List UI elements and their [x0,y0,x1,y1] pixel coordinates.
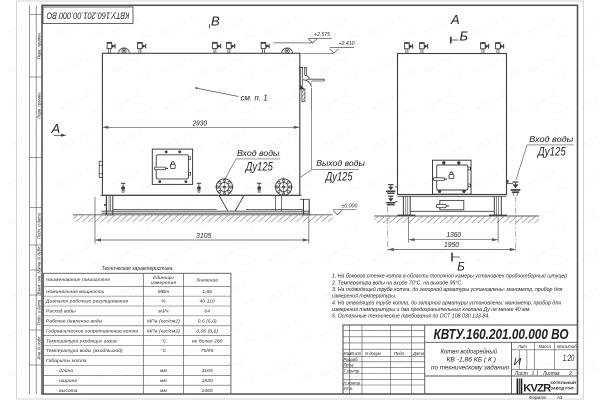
svg-text:1950: 1950 [444,242,459,249]
svg-text:Гидравлическое сопротивление: Гидравлическое сопротивление котла [46,328,138,334]
svg-text:Т.контр: Т.контр [344,369,360,374]
svg-text:А: А [450,12,460,27]
svg-text:А3: А3 [556,395,563,400]
svg-text:КВТУ.160.201.00.000 ВО: КВТУ.160.201.00.000 ВО [434,327,570,343]
svg-text:- ширина: - ширина [56,379,77,384]
svg-text:Взам. инв. N: Взам. инв. N [36,271,41,295]
svg-text:Выход воды: Выход воды [316,159,365,168]
svg-text:40-110: 40-110 [200,299,216,305]
svg-text:3105: 3105 [202,368,213,374]
svg-text:1. На боковой стенке котла: 1. На боковой стенке котла в области топ… [332,273,567,280]
svg-text:мм: мм [160,379,167,384]
svg-text:измерения температуры.: измерения температуры. [332,294,397,300]
svg-text:2930: 2930 [192,120,208,127]
svg-text:Температура уходящих газов: Температура уходящих газов [46,338,117,344]
svg-text:Н.контр: Н.контр [344,380,361,385]
svg-text:3. На подводящей трубе кот: 3. На подводящей трубе котла, до запорно… [332,286,563,293]
svg-text:ЗАВОД РЭП: ЗАВОД РЭП [551,386,574,391]
svg-text:1,86: 1,86 [202,289,212,295]
svg-text:Утв.: Утв. [344,386,354,391]
svg-text:Температура воды (вход/выход: Температура воды (вход/выход) [46,348,123,354]
svg-text:Листов: Листов [542,371,560,377]
svg-text:КВ -1,86 КБ ( К ): КВ -1,86 КБ ( К ) [447,357,497,364]
svg-text:64: 64 [204,309,210,315]
svg-text:мм: мм [160,369,167,374]
svg-text:не более 280: не более 280 [192,338,223,344]
svg-text:Подп.: Подп. [394,351,405,356]
svg-text:±0.000: ±0.000 [342,204,358,210]
svg-text:Подп. и дата: Подп. и дата [36,299,41,325]
svg-text:КОТЕЛЬНЫЙ: КОТЕЛЬНЫЙ [551,380,577,385]
svg-text:°С: °С [161,348,167,354]
svg-text:Единицы: Единицы [153,275,174,281]
svg-text:мм: мм [160,389,167,394]
svg-text:Ду125: Ду125 [244,162,273,174]
svg-text:+2.575: +2.575 [314,32,330,38]
svg-text:Диапазон рабочего регулирова: Диапазон рабочего регулирования [45,299,128,305]
svg-text:%: % [161,299,166,305]
svg-text:КВТУ.160.201.00.000 ВО: КВТУ.160.201.00.000 ВО [47,10,130,20]
svg-text:Пров.: Пров. [344,363,355,368]
svg-text:Подп. и дата: Подп. и дата [36,212,41,238]
svg-text:Рабочее давление воды: Рабочее давление воды [46,319,103,325]
svg-text:И: И [514,356,522,368]
svg-text:3105: 3105 [196,233,212,240]
svg-text:м3/ч: м3/ч [158,309,169,315]
svg-text:Ду125: Ду125 [536,147,566,159]
svg-text:Котел водогрейный: Котел водогрейный [441,349,498,356]
svg-text:0,6 (6,0): 0,6 (6,0) [198,319,217,325]
svg-text:Лит.: Лит. [517,344,528,349]
svg-text:Инв. N дубл.: Инв. N дубл. [36,246,41,270]
svg-text:В: В [211,13,220,28]
svg-text:по техническому заданию: по техническому заданию [431,365,509,372]
svg-text:Расход воды: Расход воды [46,309,76,315]
svg-text:- высота: - высота [56,389,78,394]
svg-text:2: 2 [568,371,572,377]
svg-text:Разраб.: Разраб. [344,357,359,362]
svg-text:1:20: 1:20 [563,353,575,363]
svg-text:Формат: Формат [529,395,547,400]
svg-text:Ду125: Ду125 [324,171,353,183]
svg-text:N докум: N докум [365,351,381,356]
svg-text:Лист: Лист [350,351,362,356]
svg-text:- длина: - длина [56,368,73,374]
svg-text:Инв. N подл.: Инв. N подл. [36,336,41,360]
svg-text:1: 1 [532,371,535,377]
svg-text:+2.410: +2.410 [339,41,355,47]
svg-text:Лист: Лист [514,371,528,377]
svg-text:Вход воды: Вход воды [237,149,280,158]
svg-text:Значение: Значение [196,278,218,284]
svg-text:Техническая характеристика: Техническая характеристика [102,266,173,272]
svg-text:Перв. примен.: Перв. примен. [36,32,41,59]
svg-text:Масштаб: Масштаб [557,344,577,349]
svg-text:см. п. 1: см. п. 1 [241,93,268,102]
svg-text:Габариты котла: Габариты котла [46,358,87,364]
svg-text:МПа (кгс/см2): МПа (кгс/см2) [147,319,180,325]
svg-text:°С: °С [161,338,167,344]
svg-text:Дата: Дата [412,351,425,356]
svg-text:2460: 2460 [201,388,213,394]
svg-text:Перв. примен.: Перв. примен. [36,91,41,118]
svg-text:Масса: Масса [539,344,552,349]
svg-text:Номинальная мощность: Номинальная мощность [46,289,105,295]
svg-text:5. Остальные технические тр: 5. Остальные технические требования по О… [332,314,490,320]
svg-text:Б: Б [460,29,469,44]
svg-text:Наименование показателя: Наименование показателя [46,277,110,283]
svg-text:1360: 1360 [447,232,462,239]
svg-text:KVZR: KVZR [523,382,551,394]
svg-text:2. Температура воды на вхо: 2. Температура воды на входе 70°С, на вы… [331,280,463,286]
svg-text:МВт: МВт [158,289,170,295]
svg-text:измерения температуры и два: измерения температуры и два предохраните… [332,307,531,313]
svg-text:Вход воды: Вход воды [529,135,573,144]
svg-text:0,06 (0,6): 0,06 (0,6) [196,328,218,334]
svg-text:А: А [51,121,61,136]
svg-text:МПа (кгс/см2): МПа (кгс/см2) [147,328,180,334]
svg-text:4. На отводящей трубе котл: 4. На отводящей трубе котла, до запорной… [332,299,561,306]
svg-text:1830: 1830 [202,378,213,384]
svg-text:измерения: измерения [151,281,176,286]
svg-text:Б: Б [457,261,465,273]
svg-text:70/95: 70/95 [201,348,214,354]
